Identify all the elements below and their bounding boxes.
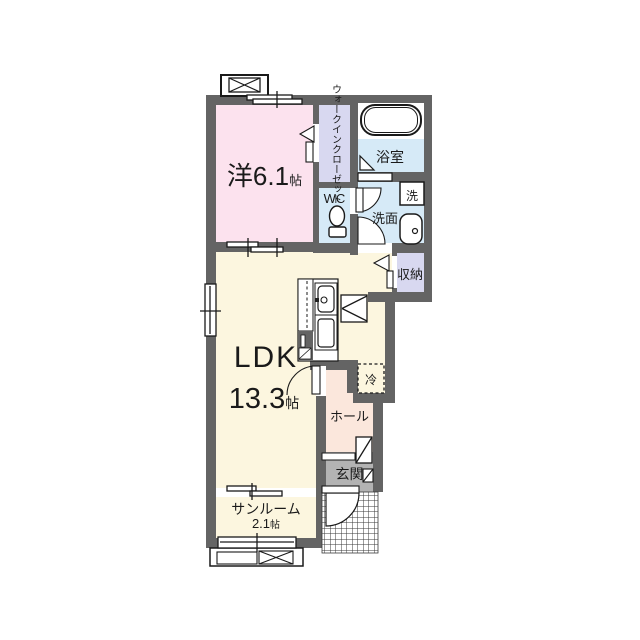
label-walk-in-closet: ウォークインクローゼット <box>319 105 350 182</box>
kitchen-sink <box>315 283 337 315</box>
ac-unit-pad <box>221 75 268 96</box>
label-washer: 洗 <box>400 187 424 204</box>
bathtub-icon <box>358 103 424 139</box>
label-ldk-size: 13.3帖 <box>212 383 316 416</box>
label-washroom: 洗面 <box>360 208 410 227</box>
storage-door <box>374 255 393 288</box>
cupboard-symbol <box>341 295 367 322</box>
label-wc: WC <box>319 191 350 206</box>
shoe-cabinet <box>356 437 372 463</box>
label-hall: ホール <box>326 406 373 425</box>
label-bathroom: 浴室 <box>356 147 424 167</box>
window-ldk-left <box>200 284 221 336</box>
label-entrance: 玄関 <box>326 464 373 484</box>
label-fridge: 冷 <box>358 371 384 388</box>
label-storage: 収納 <box>395 264 425 283</box>
label-ldk: LDK <box>216 341 316 375</box>
stove <box>315 315 337 350</box>
step-edge <box>322 453 355 460</box>
fixture-layer <box>0 0 640 640</box>
label-western-room: 洋6.1帖 <box>216 156 313 193</box>
floor-plan: 洋6.1帖 ウォークインクローゼット WC 浴室 洗 洗面 収納 LDK 13.… <box>0 0 640 640</box>
sliding-door-ldk-sunroom <box>227 483 282 500</box>
toilet-icon <box>329 206 346 237</box>
sliding-door-western-ldk <box>227 238 283 257</box>
label-sunroom-size: 2.1帖 <box>216 516 316 531</box>
